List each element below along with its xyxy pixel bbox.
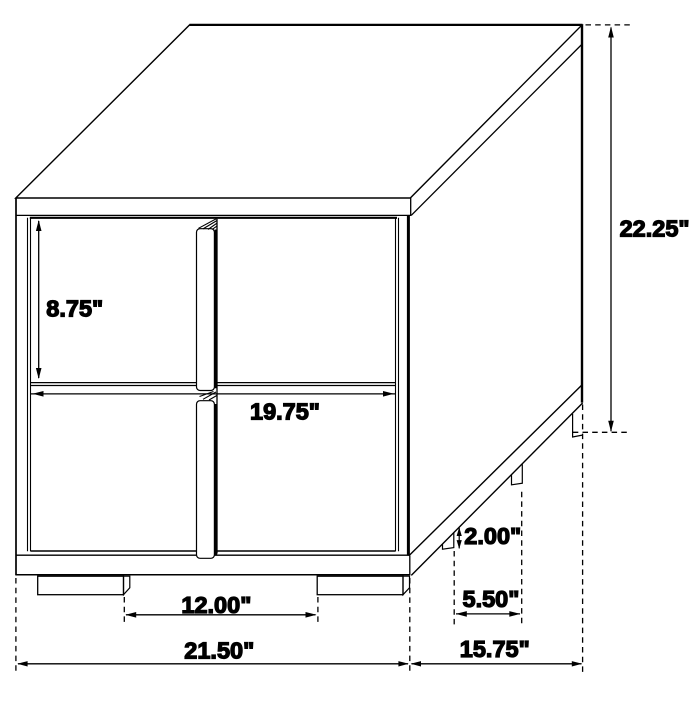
svg-text:2.00": 2.00" — [464, 523, 521, 549]
svg-text:5.50": 5.50" — [463, 586, 520, 612]
svg-text:22.25": 22.25" — [620, 216, 690, 242]
svg-text:19.75": 19.75" — [250, 399, 320, 425]
svg-text:15.75": 15.75" — [460, 636, 530, 662]
svg-text:8.75": 8.75" — [46, 296, 103, 322]
svg-text:12.00": 12.00" — [181, 592, 251, 618]
svg-text:21.50": 21.50" — [184, 637, 254, 663]
